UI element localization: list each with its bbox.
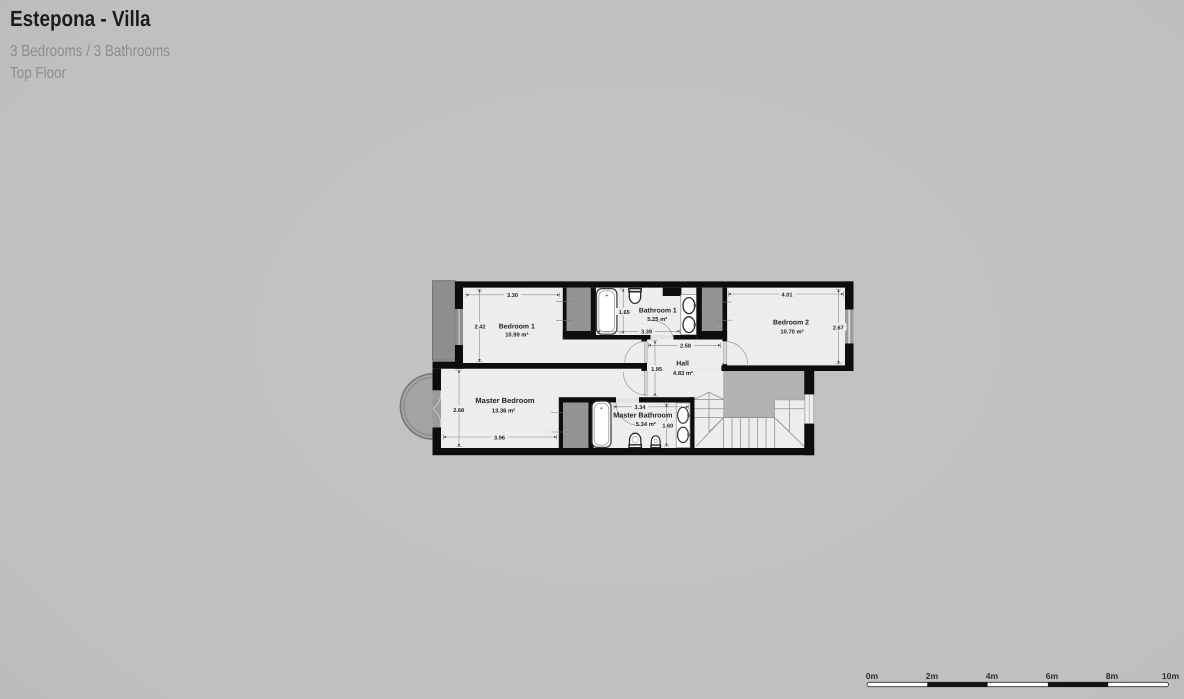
svg-text:1.95: 1.95	[651, 367, 662, 373]
svg-text:2.67: 2.67	[833, 325, 844, 331]
svg-text:10m: 10m	[1162, 671, 1180, 681]
svg-text:Bedroom 2: Bedroom 2	[773, 319, 809, 326]
svg-text:5.34 m²: 5.34 m²	[636, 421, 656, 428]
svg-text:Bathroom 1: Bathroom 1	[639, 308, 677, 315]
svg-text:Bedroom 1: Bedroom 1	[499, 324, 535, 331]
svg-text:10.70 m²: 10.70 m²	[780, 328, 803, 335]
svg-text:2m: 2m	[926, 671, 939, 681]
svg-text:Hall: Hall	[676, 361, 689, 368]
svg-text:1.65: 1.65	[619, 310, 630, 316]
svg-text:3.39: 3.39	[641, 330, 652, 336]
svg-text:0m: 0m	[866, 671, 879, 681]
svg-text:3.30: 3.30	[507, 293, 518, 299]
svg-text:10.99 m²: 10.99 m²	[505, 332, 528, 339]
svg-text:4m: 4m	[986, 671, 999, 681]
svg-text:Master Bathroom: Master Bathroom	[613, 411, 672, 420]
svg-text:3.96: 3.96	[494, 435, 505, 441]
svg-text:4.83 m²: 4.83 m²	[673, 370, 693, 377]
svg-text:1.60: 1.60	[662, 423, 673, 429]
svg-text:2.68: 2.68	[453, 408, 464, 414]
svg-text:2.58: 2.58	[680, 344, 691, 350]
svg-text:6m: 6m	[1046, 671, 1059, 681]
svg-text:4.01: 4.01	[782, 292, 793, 298]
svg-text:Master Bedroom: Master Bedroom	[475, 396, 535, 405]
svg-text:13.36 m²: 13.36 m²	[492, 407, 515, 414]
svg-text:5.25 m²: 5.25 m²	[647, 316, 667, 323]
svg-text:2.42: 2.42	[475, 325, 486, 331]
svg-text:8m: 8m	[1106, 671, 1119, 681]
